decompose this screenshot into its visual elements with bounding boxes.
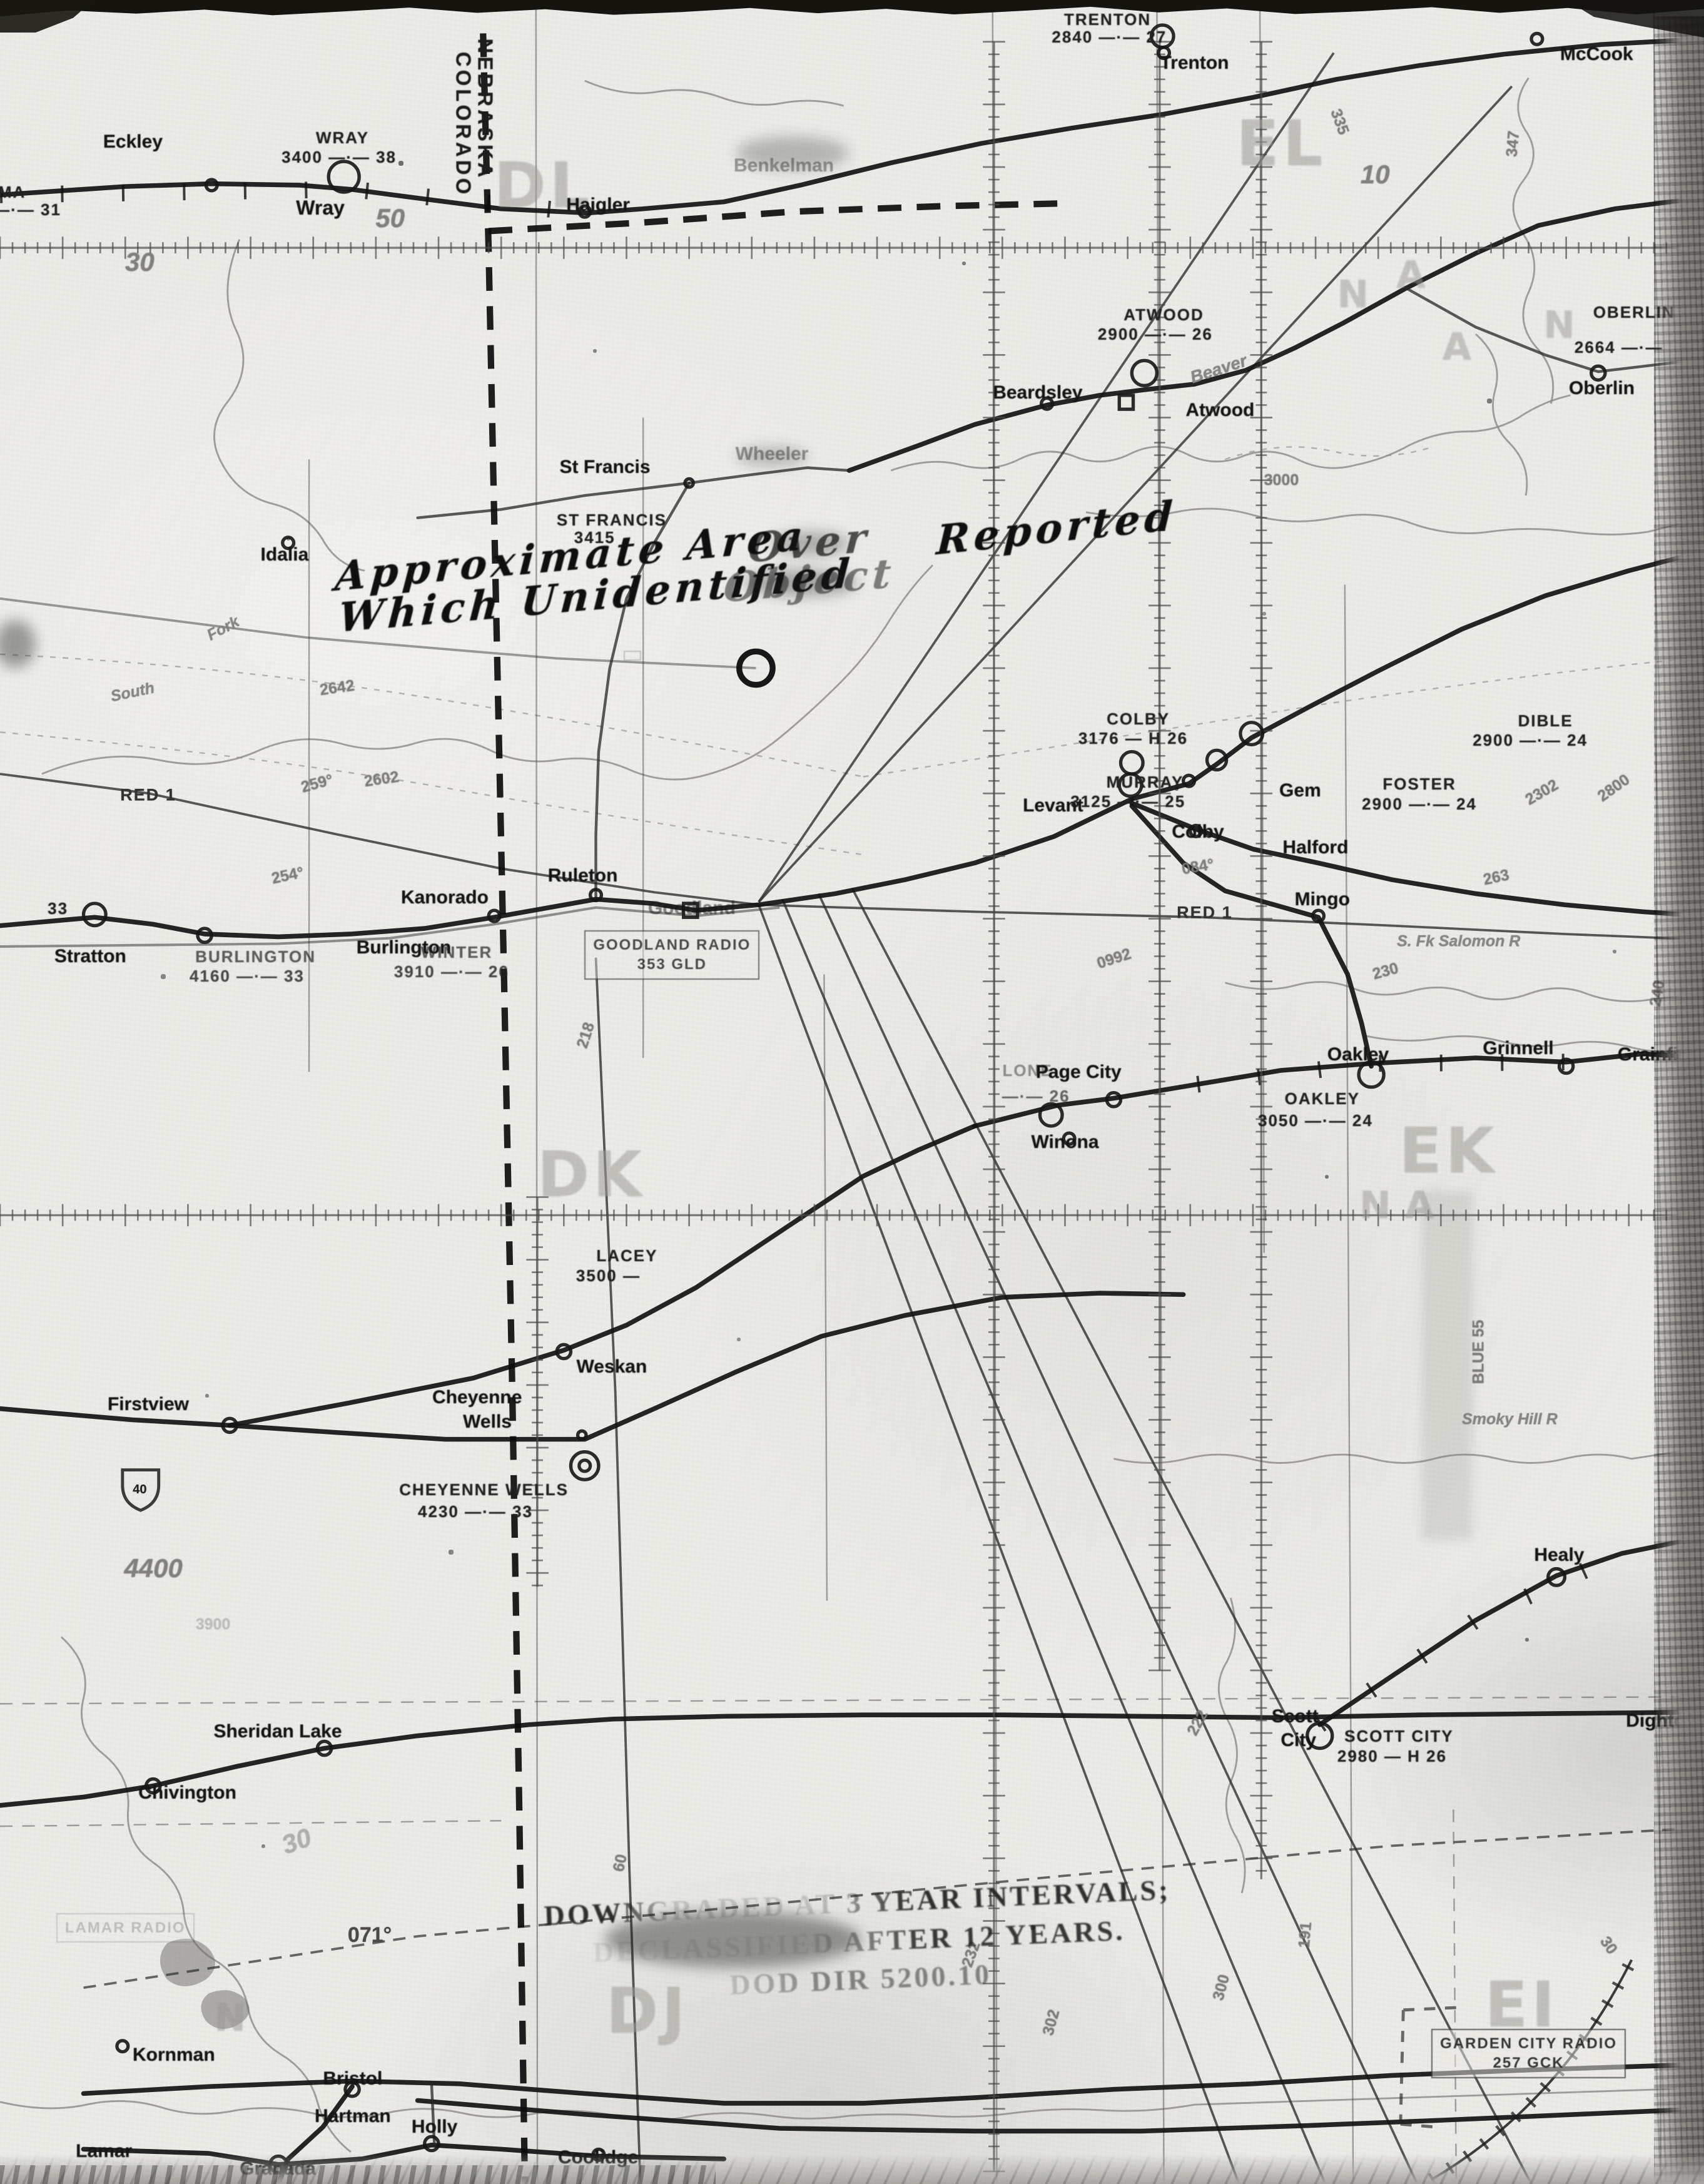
map-label: 3050 —·— 24 (1258, 1112, 1373, 1129)
map-label: 3125 —·— 25 (1070, 793, 1185, 810)
map-label: EL (1236, 113, 1326, 175)
map-label: Kanorado (401, 888, 489, 907)
map-label: Granada (240, 2160, 316, 2178)
map-label: RED 1 (120, 786, 176, 803)
map-label: ATWOOD (1123, 307, 1204, 323)
map-label: 4230 —·— 33 (418, 1503, 533, 1520)
map-label: BURLINGTON (195, 948, 316, 965)
map-label: CHEYENNE WELLS (399, 1481, 569, 1498)
map-label: COLBY (1107, 711, 1170, 727)
map-label: Atwood (1185, 401, 1254, 420)
map-label: FOSTER (1382, 776, 1456, 792)
sectional-chart-scan: TRENTON2840 —·— 27TrentonMcCookEL3353471… (0, 0, 1704, 2184)
map-label: 2664 —·— (1575, 339, 1663, 355)
ink-smudge (736, 136, 849, 169)
map-label: EK (1399, 1120, 1498, 1182)
map-label: City (1281, 1731, 1316, 1750)
map-label: 3910 —·— 26 (394, 963, 509, 980)
map-label: Haigler (566, 196, 630, 215)
map-label: DIBLE (1518, 713, 1573, 729)
map-label: Ruleton (548, 866, 618, 885)
map-label: 347 (1504, 131, 1523, 158)
map-label: Mingo (1295, 890, 1350, 909)
map-label: 4160 —·— 33 (190, 968, 305, 984)
map-label: Goodland (648, 899, 736, 918)
map-label: Beardsley (993, 383, 1082, 402)
map-label: 2900 —·— 26 (1098, 326, 1213, 342)
map-label: Oakley (1327, 1045, 1389, 1064)
map-label: TRENTON (1064, 11, 1151, 28)
map-label: Firstview (108, 1395, 189, 1414)
map-label: N (1543, 307, 1575, 344)
map-label: 33 (48, 900, 68, 917)
map-label: Kornman (133, 2046, 215, 2065)
map-label: Dighton (1626, 1712, 1696, 1730)
map-label: 3000 (1264, 473, 1299, 489)
map-label: A (1443, 328, 1471, 366)
map-label: Gem (1279, 781, 1321, 800)
map-label: Healy (1534, 1546, 1584, 1565)
map-label: MA (0, 184, 26, 200)
map-label: 2900 —·— 24 (1362, 796, 1477, 812)
map-label: 3176 — H 26 (1078, 730, 1188, 746)
map-label: Scott (1272, 1707, 1319, 1726)
map-label: N (1337, 276, 1369, 313)
map-label: Grinnell (1483, 1039, 1553, 1058)
map-label: WINTER (421, 944, 493, 960)
map-label: Page City (1036, 1063, 1122, 1082)
map-label: SCOTT CITY (1344, 1728, 1454, 1744)
map-label: Chivington (138, 1784, 236, 1802)
map-label: Lamar (76, 2142, 132, 2161)
map-label: S. Fk Salomon R (1397, 933, 1520, 949)
map-label: N (215, 1999, 246, 2037)
goodland-radio-box: GOODLAND RADIO353 GLD (584, 930, 759, 979)
map-label: 4400 (124, 1555, 182, 1582)
map-label: 50 (375, 205, 405, 231)
map-label: 071° (348, 1924, 392, 1946)
garden-city-radio-box: GARDEN CITY RADIO257 GCK (1431, 2029, 1626, 2078)
map-label: Levant (1023, 796, 1083, 815)
map-label: OAKLEY (1285, 1090, 1360, 1107)
map-label: —·— 31 (0, 201, 61, 218)
map-label: 3400 —·— 38 (281, 149, 397, 165)
map-label: WRAY (316, 130, 369, 146)
map-label: 3900 (196, 1617, 231, 1633)
map-label: Sheridan Lake (213, 1722, 342, 1741)
map-label: St Francis (559, 458, 650, 477)
map-label: Hartman (315, 2107, 391, 2126)
map-label: OBERLIN (1593, 304, 1675, 320)
map-label: Colby (1172, 823, 1224, 841)
map-label: RED 1 (1177, 905, 1233, 922)
map-label: MURRAY (1107, 774, 1184, 790)
map-label: COLORADO (453, 52, 474, 198)
map-label: 60 (611, 1853, 629, 1873)
map-label: Oberlin (1569, 379, 1635, 398)
map-label: Idalia (261, 546, 309, 564)
map-label: Eckley (103, 133, 163, 151)
map-label: EI (1485, 1974, 1559, 2036)
map-label: Holly (412, 2118, 457, 2136)
map-label: 2900 —·— 24 (1473, 732, 1588, 748)
ink-smudge (744, 570, 857, 596)
map-label: Trenton (1160, 54, 1229, 73)
map-label: NEBRASKA (475, 38, 496, 180)
map-label: Wells (463, 1413, 512, 1431)
map-label: 30 (125, 249, 155, 275)
map-label: 2980 — H 26 (1337, 1748, 1447, 1764)
map-label: Smoky Hill R (1462, 1412, 1558, 1428)
map-label: 10 (1361, 161, 1390, 188)
scan-specks (0, 0, 1, 1)
contour-lines (0, 447, 1704, 855)
map-label: —·— 26 (1002, 1088, 1070, 1104)
map-label: A (1396, 256, 1425, 294)
lamar-radio-box: LAMAR RADIO (56, 1913, 195, 1943)
faint-facility-box (624, 651, 641, 661)
map-label: Stratton (54, 947, 126, 966)
map-label: Halford (1282, 838, 1348, 857)
map-label: 3500 — (576, 1267, 641, 1284)
map-label: Grainfield (1618, 1045, 1704, 1064)
map-label: 191 (1296, 1921, 1314, 1949)
map-label: 40 (133, 1483, 146, 1496)
map-label: DK (537, 1144, 646, 1206)
map-label: LACEY (596, 1247, 657, 1264)
map-label: 2840 —·— 27 (1052, 29, 1167, 45)
map-label: Winona (1031, 1133, 1098, 1152)
state-boundary (483, 33, 1072, 2184)
map-label: Cheyenne (432, 1388, 522, 1407)
map-label: McCook (1560, 45, 1633, 64)
scan-shade-strip (1421, 1191, 1473, 1540)
map-label: Weskan (576, 1358, 647, 1376)
map-label: Wray (296, 198, 345, 218)
map-label: BLUE 55 (1471, 1320, 1487, 1384)
map-label: Bristol (323, 2070, 382, 2088)
map-label: Coolidge (558, 2148, 638, 2167)
map-label: N (1359, 1187, 1391, 1224)
